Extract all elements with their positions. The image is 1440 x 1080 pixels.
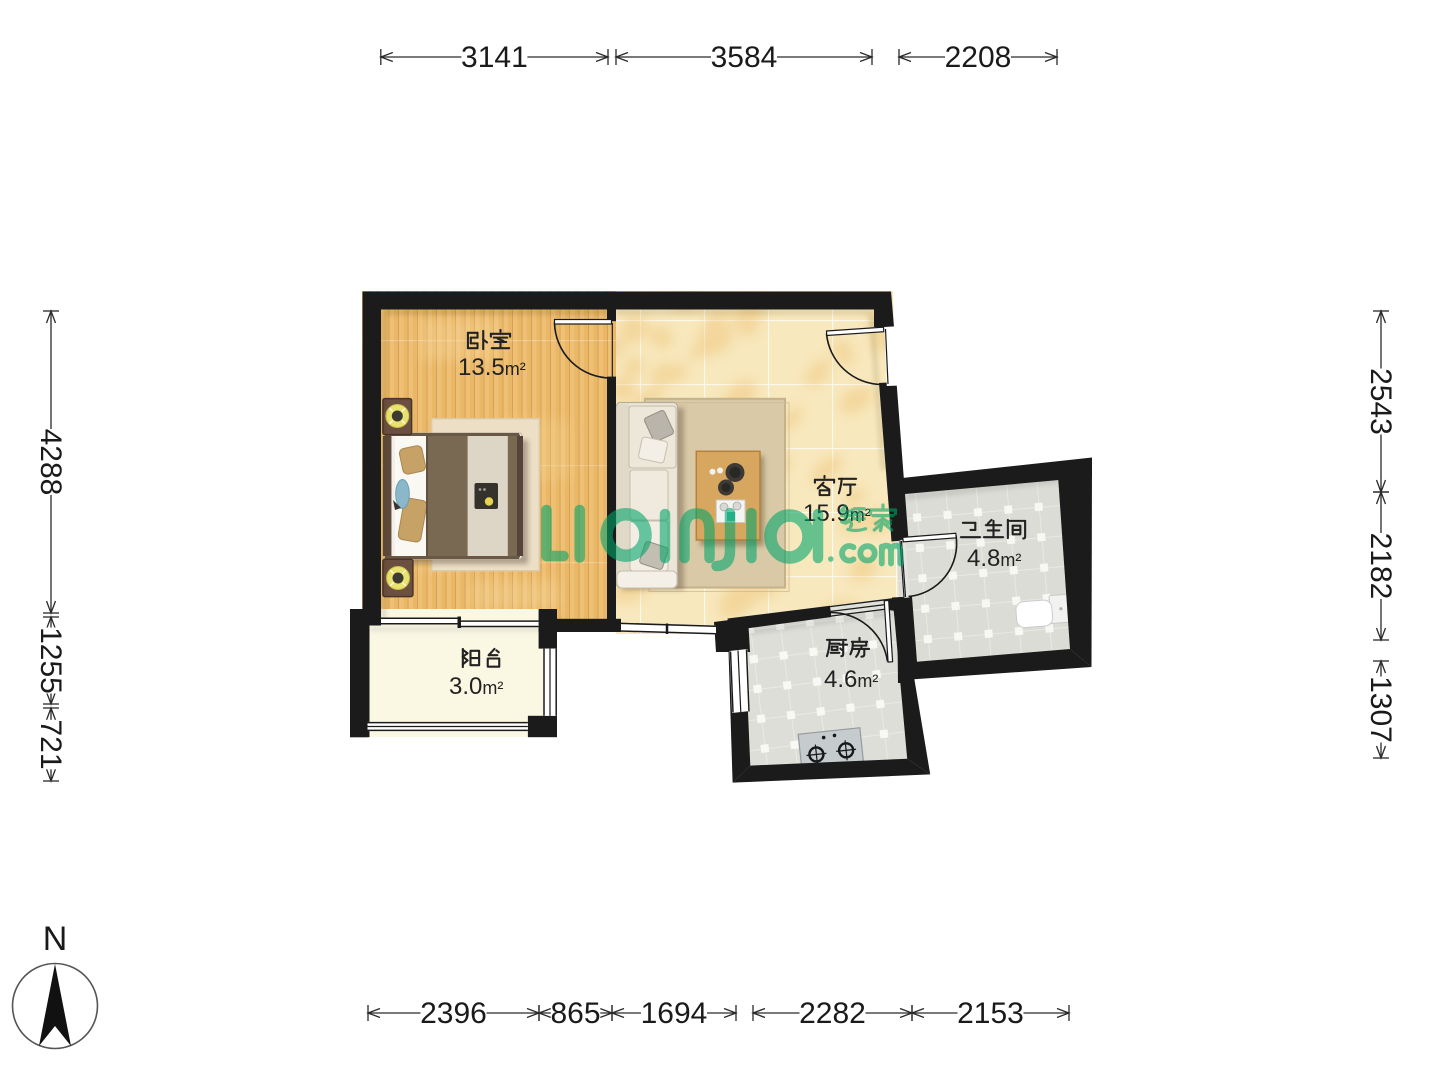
svg-text:4288: 4288 — [34, 429, 67, 496]
svg-text:2182: 2182 — [1364, 533, 1397, 600]
svg-text:2396: 2396 — [420, 997, 487, 1030]
svg-text:1694: 1694 — [641, 997, 708, 1030]
svg-text:865: 865 — [550, 997, 600, 1030]
svg-text:2282: 2282 — [799, 997, 866, 1030]
svg-text:721: 721 — [34, 719, 67, 769]
svg-text:3.0m²: 3.0m² — [449, 673, 503, 700]
svg-text:N: N — [43, 920, 68, 958]
svg-text:1255: 1255 — [34, 627, 67, 694]
svg-text:3584: 3584 — [711, 41, 778, 74]
svg-text:4.6m²: 4.6m² — [824, 666, 878, 693]
svg-text:2153: 2153 — [957, 997, 1024, 1030]
svg-text:13.5m²: 13.5m² — [458, 354, 526, 381]
svg-text:2543: 2543 — [1364, 368, 1397, 435]
svg-text:4.8m²: 4.8m² — [967, 545, 1021, 572]
svg-text:2208: 2208 — [945, 41, 1012, 74]
svg-text:3141: 3141 — [461, 41, 528, 74]
svg-text:1307: 1307 — [1364, 676, 1397, 743]
